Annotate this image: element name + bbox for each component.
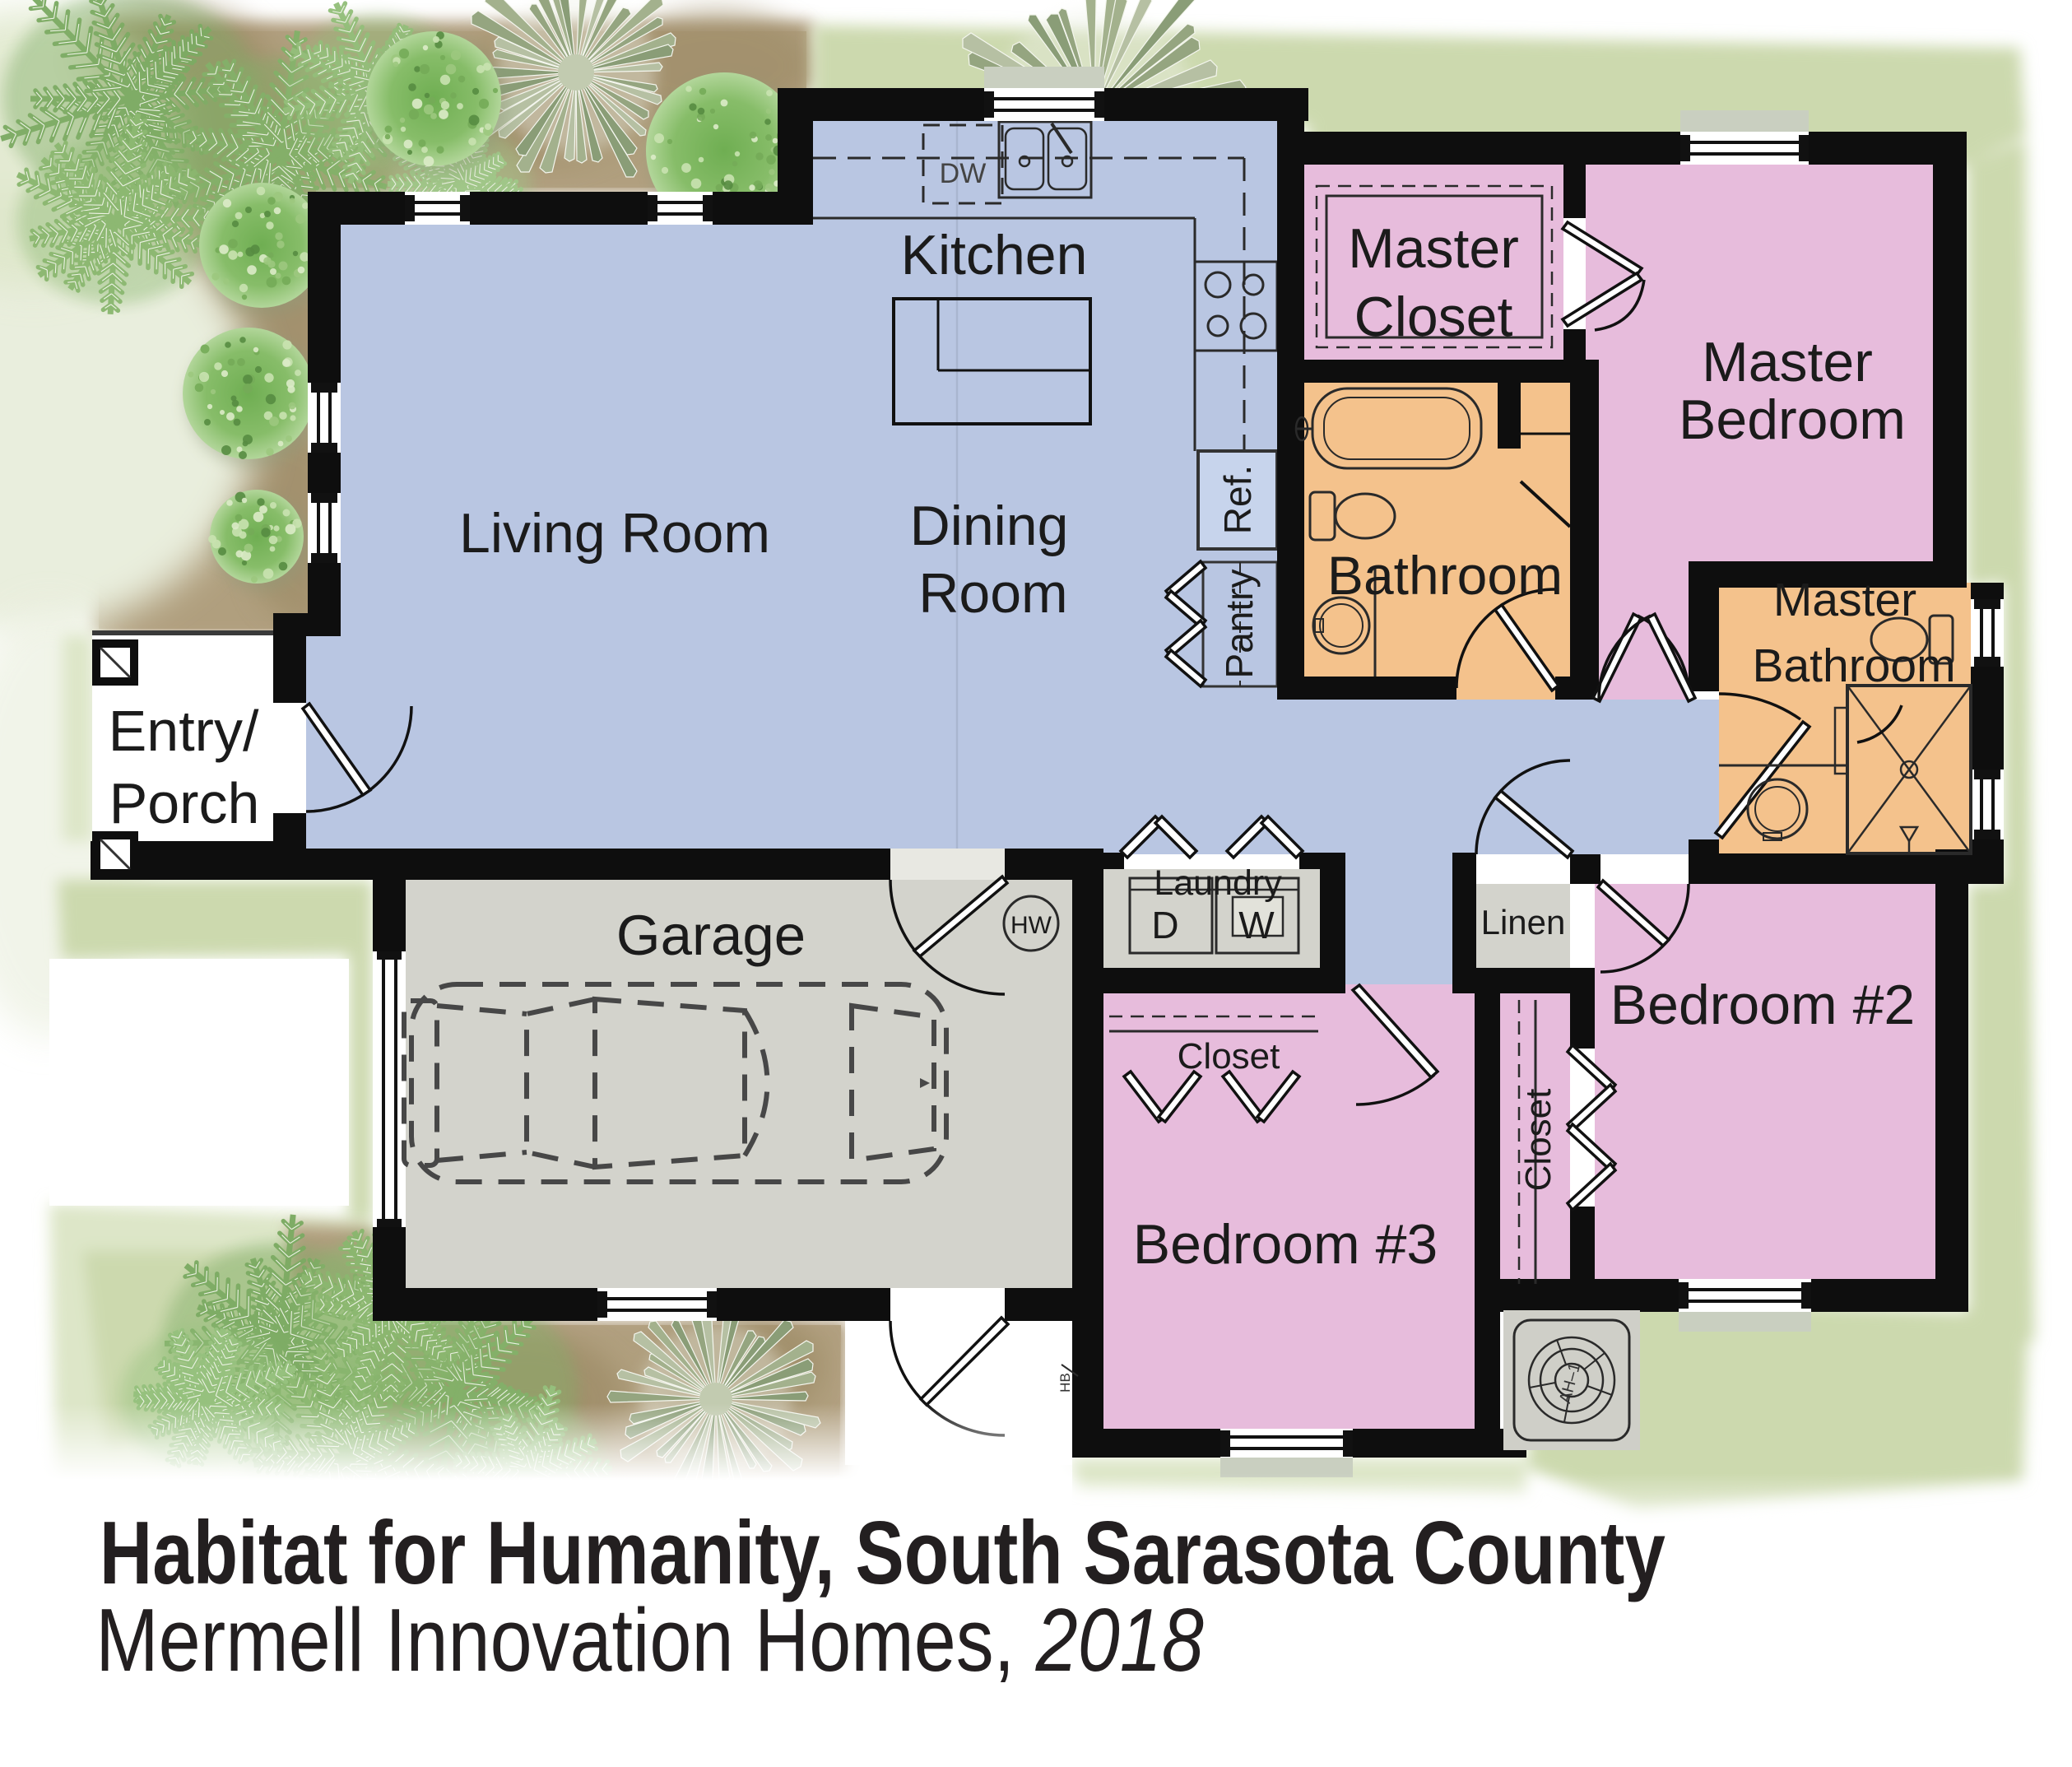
svg-text:Room: Room: [918, 562, 1067, 625]
svg-text:D: D: [1151, 904, 1178, 946]
svg-text:Bathroom: Bathroom: [1327, 545, 1563, 606]
svg-text:HW: HW: [1010, 912, 1052, 939]
svg-text:Habitat for Humanity, South Sa: Habitat for Humanity, South Sarasota Cou…: [100, 1504, 1665, 1604]
svg-text:Pantry: Pantry: [1218, 570, 1261, 679]
svg-text:Linen: Linen: [1481, 903, 1566, 942]
svg-text:DW: DW: [940, 158, 987, 189]
svg-text:Bedroom #3: Bedroom #3: [1133, 1213, 1438, 1276]
svg-text:Closet: Closet: [1178, 1036, 1280, 1076]
svg-text:Entry/: Entry/: [109, 699, 259, 763]
svg-text:Bathroom: Bathroom: [1752, 639, 1955, 692]
svg-text:Closet: Closet: [1518, 1089, 1559, 1192]
svg-text:Bedroom #2: Bedroom #2: [1610, 974, 1915, 1036]
svg-text:HB: HB: [1057, 1373, 1073, 1393]
svg-text:Master: Master: [1348, 217, 1519, 280]
svg-text:W: W: [1238, 904, 1275, 946]
svg-text:Garage: Garage: [616, 904, 806, 967]
svg-text:Closet: Closet: [1354, 286, 1513, 348]
svg-text:Ref.: Ref.: [1216, 465, 1259, 534]
svg-text:Master: Master: [1773, 574, 1916, 626]
svg-text:Living Room: Living Room: [459, 502, 770, 565]
svg-text:Porch: Porch: [109, 771, 260, 835]
svg-text:Kitchen: Kitchen: [901, 224, 1088, 286]
svg-text:Mermell Innovation Homes, 2018: Mermell Innovation Homes, 2018: [95, 1591, 1204, 1690]
svg-text:Master: Master: [1702, 331, 1873, 393]
svg-text:Dining: Dining: [910, 495, 1069, 557]
svg-text:Bedroom: Bedroom: [1679, 388, 1906, 451]
svg-text:Laundry: Laundry: [1154, 863, 1282, 903]
